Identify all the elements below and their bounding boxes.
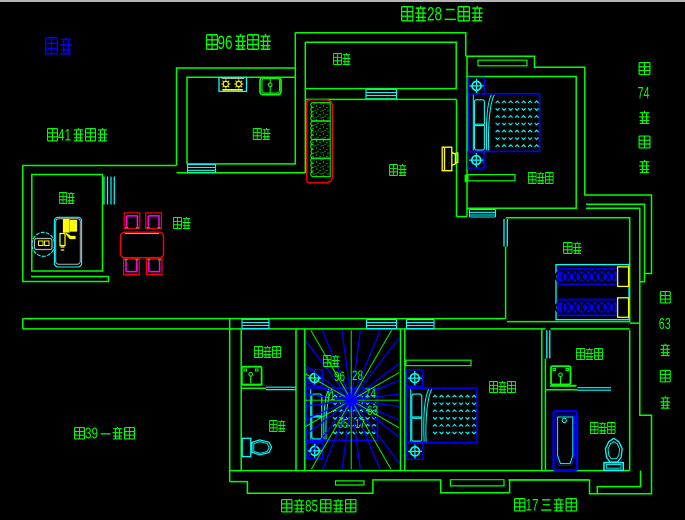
- svg-text:96: 96: [334, 368, 345, 384]
- svg-text:39: 39: [85, 426, 98, 443]
- svg-text:74: 74: [365, 385, 376, 401]
- svg-text:41: 41: [58, 126, 71, 145]
- svg-text:96: 96: [218, 33, 233, 54]
- svg-text:17: 17: [355, 416, 365, 431]
- svg-text:41: 41: [325, 388, 335, 403]
- svg-text:28: 28: [352, 367, 363, 383]
- svg-text:85: 85: [338, 416, 348, 431]
- svg-text:63: 63: [659, 316, 671, 333]
- svg-text:63: 63: [367, 402, 378, 418]
- svg-text:28: 28: [427, 5, 442, 26]
- svg-text:17: 17: [526, 496, 539, 515]
- svg-text:74: 74: [638, 84, 650, 103]
- svg-text:85: 85: [305, 497, 318, 516]
